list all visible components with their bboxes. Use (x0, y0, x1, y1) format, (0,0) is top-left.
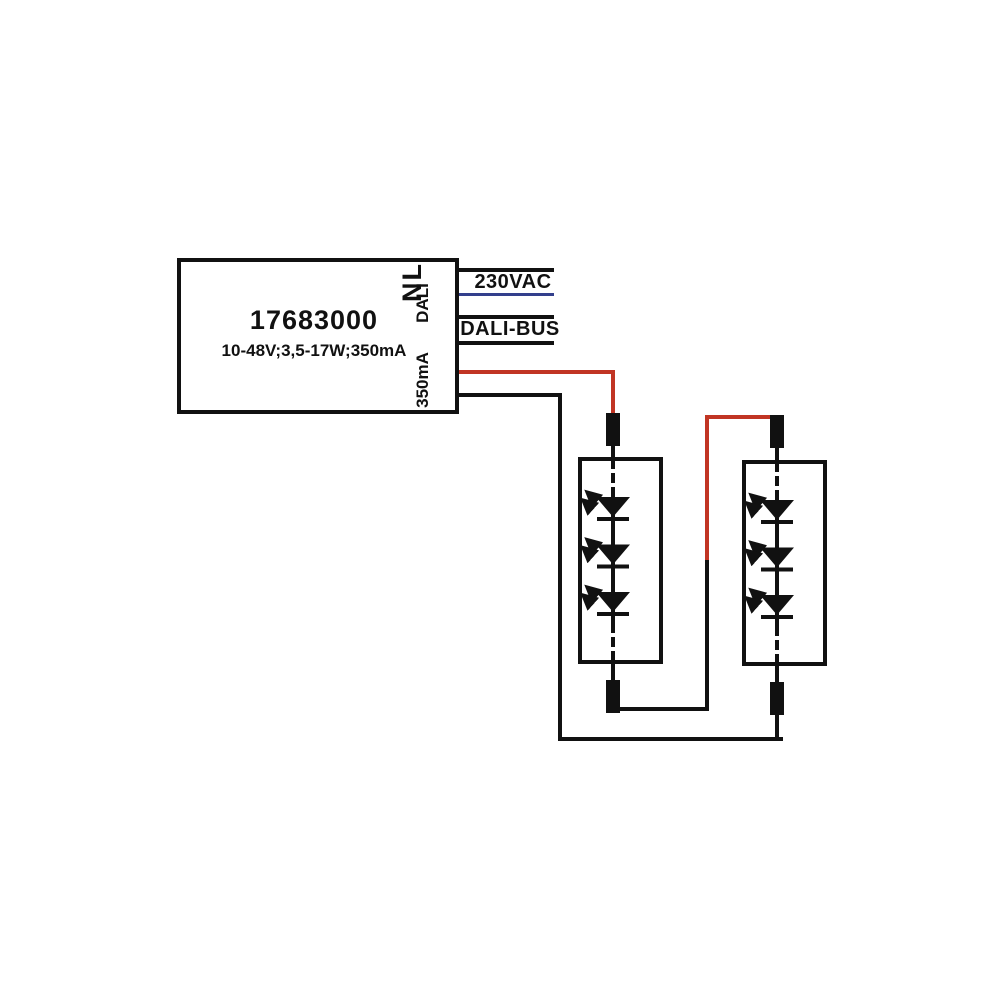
label-230vac: 230VAC (468, 271, 558, 294)
terminal-label-output-350ma: 350mA (413, 350, 433, 410)
led-string-icon (746, 464, 823, 662)
label-dali-bus: DALI-BUS (460, 318, 560, 341)
connector-module2-top (770, 415, 784, 448)
led-icon (584, 541, 630, 569)
led-string-icon (582, 461, 659, 660)
connector-module2-bottom (770, 682, 784, 715)
driver-part-number: 17683000 (189, 305, 439, 336)
terminal-label-dali: DALI (413, 283, 433, 323)
led-module-2 (742, 460, 827, 666)
wire-output-positive-horizontal (459, 370, 615, 374)
wire-output-negative-vertical (558, 395, 562, 741)
connector-module1-bottom (606, 680, 620, 713)
driver-specs: 10-48V;3,5-17W;350mA (181, 341, 447, 361)
led-icon (748, 591, 794, 619)
led-module-1 (578, 457, 663, 664)
connector-module1-top (606, 413, 620, 446)
wire-series-link-vertical-red (705, 417, 709, 560)
wire-series-link-vertical-black (705, 558, 709, 711)
wire-return-bottom (558, 737, 783, 741)
wire-output-negative-horizontal (459, 393, 562, 397)
led-icon (584, 493, 630, 521)
led-icon (584, 588, 630, 616)
wiring-diagram: 17683000 10-48V;3,5-17W;350mA NL DALI 35… (0, 0, 1000, 1000)
led-icon (748, 496, 794, 524)
wire-dali-b (459, 341, 554, 345)
led-icon (748, 544, 794, 572)
led-driver-box: 17683000 10-48V;3,5-17W;350mA NL DALI 35… (177, 258, 459, 414)
wire-output-positive-drop (611, 372, 615, 415)
wire-series-link-horizontal (613, 707, 709, 711)
